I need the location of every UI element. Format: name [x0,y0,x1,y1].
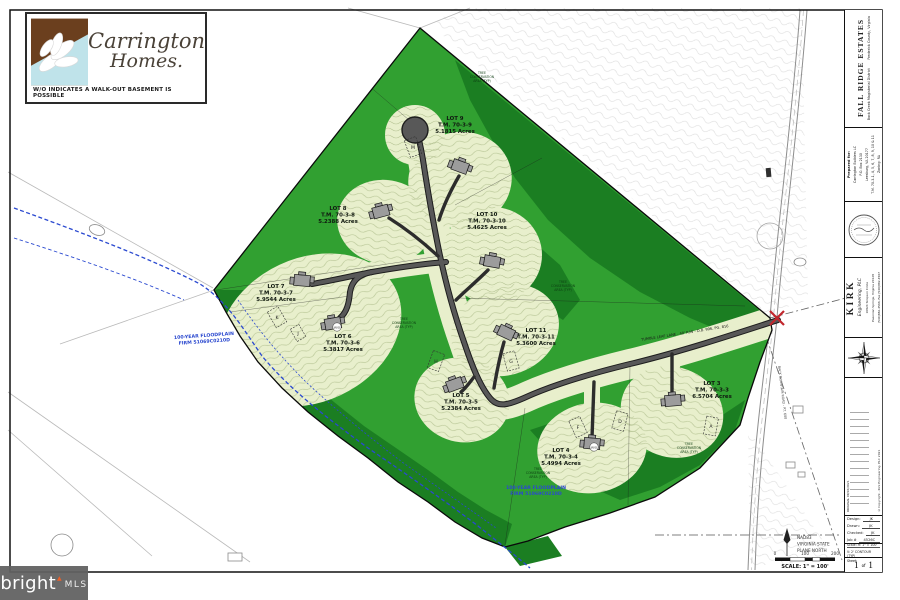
plat-sheet: W/O W/O M K J H G F D A LOT 9T.M. 7 [0,0,900,600]
firm-subtitle: Engineering, PLC [858,278,863,316]
bright-mls-watermark: bright ▲ MLS [0,566,88,600]
revisions-panel: ORIGINAL 09/16/2021 ©Copyright - Kirk En… [845,378,882,516]
project-district: Back Creek Magisterial District Frederic… [867,16,871,120]
svg-text:100-YEAR FLOODPLAINFIRM 51069C: 100-YEAR FLOODPLAINFIRM 51069C0210D [174,331,235,347]
svg-text:100: 100 [801,551,809,556]
seal-panel [845,202,882,258]
sheet-panel: Sheet: 1 of 1 [845,558,882,572]
drawn-value: JK [862,524,880,529]
firm-name: KIRK [846,280,856,315]
svg-text:H: H [434,359,437,365]
bright-wordmark: bright [0,573,56,594]
prepared-for-panel: Prepared for: Carrington Builders LC P.O… [845,128,882,202]
scale-vertical: V: 2' CONTOUR (TYP) [847,550,880,559]
zoning-note: Zoning: RA [877,155,881,173]
mls-wordmark: MLS [65,580,88,590]
back-road-label: BACK MOUNTAIN ROAD - RT. 600 [777,366,788,420]
svg-text:SCALE: 1" = 100': SCALE: 1" = 100' [781,564,829,570]
svg-text:D: D [618,419,622,425]
svg-text:J: J [296,331,298,337]
svg-text:F: F [577,425,580,431]
drawn-label: Drawn: [847,524,860,528]
job-label: Job # [847,538,857,542]
firm-address-2: Paeonian Springs, Virginia 20129 [871,274,875,322]
svg-text:G: G [509,359,513,365]
svg-text:VIRGINIA STATE: VIRGINIA STATE [797,542,830,547]
sheet-of: of [862,563,866,568]
professional-seal [847,204,881,256]
firm-phone: (540)882-4566, Fax (540)882-4567 [877,272,881,323]
walkout-note: W/O INDICATES A WALK-OUT BASEMENT IS POS… [27,87,205,102]
builder-logo: Carrington Homes. W/O INDICATES A WALK-O… [25,12,207,104]
svg-text:M: M [411,145,415,151]
job-value: 4526C [859,538,880,543]
sheet-label: Sheet: [847,559,857,563]
bright-accent-icon: ▲ [57,575,62,582]
copyright-note: ©Copyright - Kirk Engineering, PLC 2021 [877,384,881,512]
compass-rose-icon [847,339,881,377]
svg-text:NAD83: NAD83 [797,535,812,540]
cul-de-sac [402,117,428,143]
sheet-total: 1 [868,560,873,570]
project-title-panel: FALL RIDGE ESTATES Back Creek Magisteria… [845,10,882,128]
firm-address-1: 16924 Simpson Circle [865,282,869,314]
engineer-panel: KIRK Engineering, PLC 16924 Simpson Circ… [845,258,882,338]
scale-horizontal: Scale: H: 1" = 100' [847,544,880,548]
title-block: FALL RIDGE ESTATES Back Creek Magisteria… [844,10,882,572]
magnolia-logo-icon [31,18,88,86]
client-address-2: Leesburg, VA 20177 [865,148,869,181]
svg-text:W/O: W/O [591,445,598,449]
revision-table-lines [850,412,869,509]
svg-text:W/O: W/O [334,325,341,329]
svg-text:200: 200 [831,551,839,556]
compass-panel [845,338,882,378]
tax-map-note: T.M. 70-3-1, 4, 5, 6, 7, 8, 9, 10 & 11 [871,135,875,194]
client-address-1: P.O. Box 2130 [859,153,863,176]
checked-label: Checked: [847,531,864,535]
prepared-for-heading: Prepared for: [847,151,851,178]
svg-text:0: 0 [774,551,777,556]
checked-value: JK [866,531,880,536]
builder-name: Carrington Homes. [88,31,205,71]
scale-panel: Scale: H: 1" = 100' V: 2' CONTOUR (TYP) [845,544,882,558]
design-label: Design: [847,517,861,521]
car-symbol [766,168,772,177]
credits-panel: Design:JK Drawn:JK Checked:JK Job #4526C [845,516,882,544]
client-name: Carrington Builders LC [853,146,857,183]
project-title: FALL RIDGE ESTATES [856,19,865,117]
design-value: JK [863,517,880,522]
